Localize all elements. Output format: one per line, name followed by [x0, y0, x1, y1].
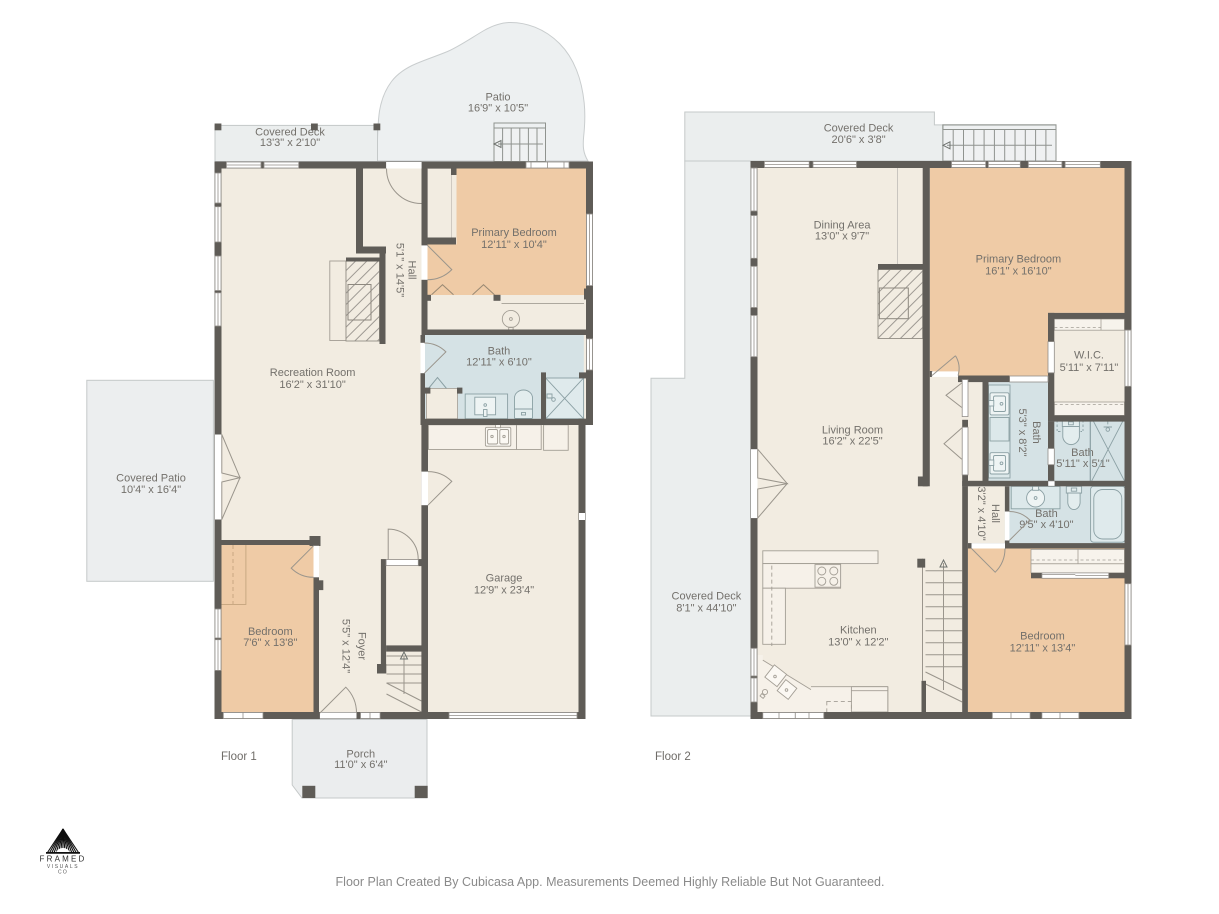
svg-text:W.I.C.: W.I.C. [1074, 350, 1104, 362]
svg-text:Foyer: Foyer [356, 632, 368, 660]
svg-text:Bedroom: Bedroom [1020, 631, 1065, 643]
svg-text:10'4" x 16'4": 10'4" x 16'4" [121, 484, 181, 496]
svg-text:Floor 1: Floor 1 [221, 751, 257, 763]
svg-text:Primary Bedroom: Primary Bedroom [471, 227, 557, 239]
svg-text:3'2" x 4'10": 3'2" x 4'10" [975, 486, 987, 540]
svg-text:12'11" x 10'4": 12'11" x 10'4" [481, 239, 547, 251]
svg-text:13'3" x 2'10": 13'3" x 2'10" [260, 137, 320, 149]
svg-text:16'2" x 31'10": 16'2" x 31'10" [279, 379, 346, 391]
svg-text:16'1" x 16'10": 16'1" x 16'10" [985, 266, 1052, 278]
svg-text:12'11" x 6'10": 12'11" x 6'10" [466, 357, 532, 369]
svg-text:Floor 2: Floor 2 [655, 751, 691, 763]
svg-text:13'0" x 9'7": 13'0" x 9'7" [815, 231, 869, 243]
svg-text:Recreation Room: Recreation Room [270, 367, 356, 379]
svg-text:5'5" x 12'4": 5'5" x 12'4" [340, 619, 352, 673]
svg-text:13'0" x 12'2": 13'0" x 12'2" [828, 637, 888, 649]
svg-text:Floor Plan Created By Cubicasa: Floor Plan Created By Cubicasa App. Meas… [336, 875, 885, 889]
svg-text:Kitchen: Kitchen [840, 625, 877, 637]
svg-text:Hall: Hall [989, 504, 1001, 523]
svg-text:5'11" x 7'11": 5'11" x 7'11" [1060, 362, 1119, 374]
svg-text:Bath: Bath [1030, 421, 1042, 444]
svg-text:16'9" x 10'5": 16'9" x 10'5" [468, 103, 528, 115]
svg-text:CO: CO [58, 870, 68, 876]
svg-text:9'5" x 4'10": 9'5" x 4'10" [1019, 519, 1073, 531]
svg-text:Covered Deck: Covered Deck [824, 123, 894, 135]
svg-text:Covered Patio: Covered Patio [116, 473, 186, 485]
svg-text:Hall: Hall [406, 261, 418, 280]
svg-text:Covered Deck: Covered Deck [672, 591, 742, 603]
svg-text:12'11" x 13'4": 12'11" x 13'4" [1010, 643, 1076, 655]
svg-text:12'9" x 23'4": 12'9" x 23'4" [474, 585, 534, 597]
svg-text:11'0" x 6'4": 11'0" x 6'4" [334, 759, 387, 771]
svg-text:20'6" x 3'8": 20'6" x 3'8" [831, 134, 885, 146]
svg-text:7'6" x 13'8": 7'6" x 13'8" [243, 637, 297, 649]
svg-text:5'3" x 8'2": 5'3" x 8'2" [1016, 408, 1028, 456]
svg-text:Garage: Garage [486, 573, 523, 585]
svg-text:Primary Bedroom: Primary Bedroom [976, 254, 1062, 266]
svg-text:5'11" x 5'1": 5'11" x 5'1" [1056, 458, 1109, 470]
svg-text:5'1" x 14'5": 5'1" x 14'5" [394, 243, 406, 297]
svg-text:FRAMED: FRAMED [40, 855, 87, 864]
svg-text:8'1" x 44'10": 8'1" x 44'10" [676, 603, 736, 615]
svg-text:16'2" x 22'5": 16'2" x 22'5" [822, 436, 882, 448]
